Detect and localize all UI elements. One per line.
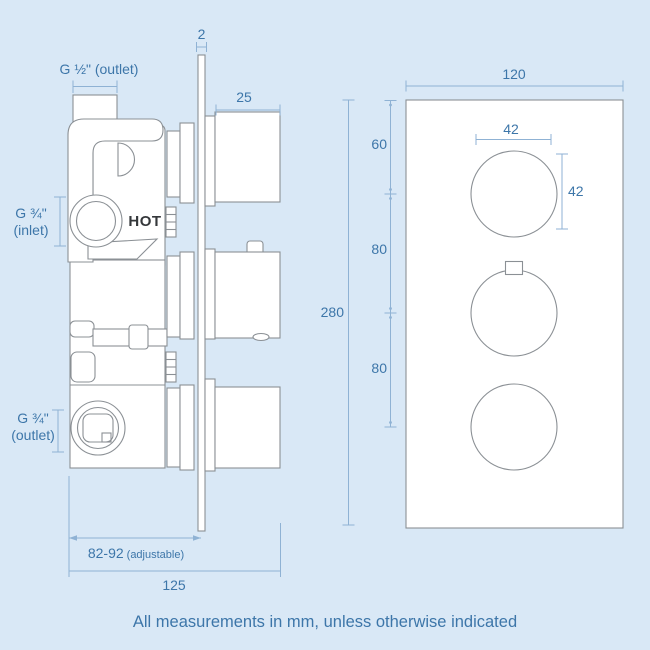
dim-plate-height-label: 280 xyxy=(321,304,345,320)
dim-total-depth: 125 xyxy=(69,566,281,594)
valve-stem-middle xyxy=(167,252,194,339)
valve-stem-bottom xyxy=(167,385,194,470)
flange-top xyxy=(205,116,215,206)
front-view: 120 42 42 280 xyxy=(321,66,623,528)
knob-bottom-profile xyxy=(215,387,280,468)
technical-drawing: HOT G ½" (outlet) 2 25 G ¾" (inlet) xyxy=(0,0,650,650)
dim-depth-range-label: 82-92(adjustable) xyxy=(88,545,184,561)
pipe-end-cap xyxy=(71,352,95,382)
cartridge-spindle-lower xyxy=(166,352,176,382)
dim-total-depth-label: 125 xyxy=(162,577,186,593)
knob-middle-profile xyxy=(215,252,280,338)
knob-middle-front-button xyxy=(506,262,523,275)
dim-plate-height: 280 xyxy=(321,100,355,525)
dim-knob-positions: 60 80 80 xyxy=(371,101,396,428)
knob-top-profile xyxy=(215,112,280,202)
dim-knob-depth-label: 25 xyxy=(236,89,252,105)
dim-outlet: G ¾" (outlet) xyxy=(11,410,64,452)
dim-depth-adjustable: 82-92(adjustable) xyxy=(69,476,281,577)
dim-inlet-type-label: (inlet) xyxy=(13,222,48,238)
inlet-port-outer xyxy=(70,195,122,247)
cartridge-spindle-upper xyxy=(166,207,176,237)
hot-marking: HOT xyxy=(128,213,161,230)
face-plate xyxy=(406,100,623,528)
measurement-note: All measurements in mm, unless otherwise… xyxy=(133,613,517,631)
dim-top-port: G ½" (outlet) xyxy=(60,61,139,93)
dim-outlet-size-label: G ¾" xyxy=(17,410,48,426)
dim-plate-width: 120 xyxy=(406,66,623,92)
dim-knob-height-label: 42 xyxy=(568,183,584,199)
dim-knob-width-label: 42 xyxy=(503,121,519,137)
knob-middle-lens xyxy=(253,334,269,341)
valve-stem-top xyxy=(167,123,194,203)
dim-plate-thickness: 2 xyxy=(197,26,207,52)
dim-spacing1-label: 80 xyxy=(371,241,387,257)
dim-top-offset-label: 60 xyxy=(371,136,387,152)
dim-inlet-size-label: G ¾" xyxy=(15,205,46,221)
dim-inlet: G ¾" (inlet) xyxy=(13,197,66,246)
outlet-port-outer xyxy=(71,401,125,455)
dim-top-port-label: G ½" (outlet) xyxy=(60,61,139,77)
diagram-canvas: HOT G ½" (outlet) 2 25 G ¾" (inlet) xyxy=(0,0,650,650)
wall-plate-profile xyxy=(198,55,205,531)
body-tab xyxy=(70,321,94,337)
dim-spacing2-label: 80 xyxy=(371,360,387,376)
side-view: HOT G ½" (outlet) 2 25 G ¾" (inlet) xyxy=(11,26,280,593)
pipe-coupling xyxy=(129,325,148,349)
dim-plate-width-label: 120 xyxy=(502,66,526,82)
dim-outlet-type-label: (outlet) xyxy=(11,427,55,443)
dim-plate-thickness-label: 2 xyxy=(198,26,206,42)
flange-middle xyxy=(205,249,215,339)
flange-bottom xyxy=(205,379,215,471)
